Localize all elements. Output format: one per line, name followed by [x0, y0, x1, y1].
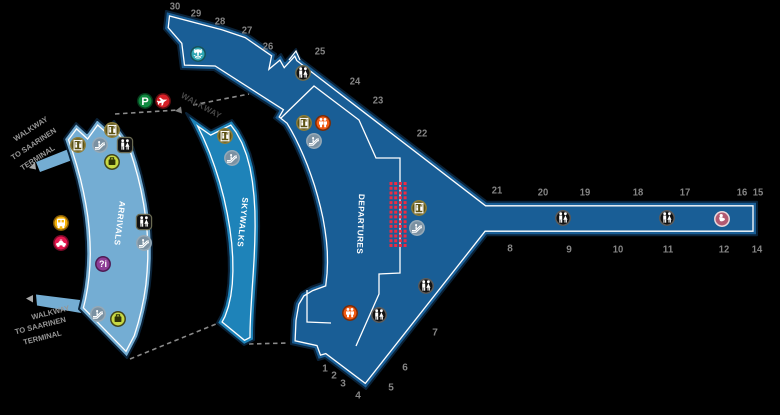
- svg-text:4: 4: [355, 391, 361, 402]
- svg-text:10: 10: [613, 245, 624, 256]
- svg-text:5: 5: [388, 383, 394, 394]
- svg-text:16: 16: [737, 188, 748, 199]
- svg-text:8: 8: [507, 244, 513, 255]
- svg-text:19: 19: [580, 188, 591, 199]
- svg-text:20: 20: [538, 188, 549, 199]
- svg-text:24: 24: [350, 77, 361, 88]
- svg-text:1: 1: [322, 364, 328, 375]
- svg-text:29: 29: [191, 9, 202, 20]
- svg-text:17: 17: [680, 188, 691, 199]
- svg-text:14: 14: [752, 245, 763, 256]
- svg-text:27: 27: [242, 26, 253, 37]
- svg-text:?i: ?i: [99, 259, 107, 269]
- svg-text:25: 25: [315, 47, 326, 58]
- svg-text:21: 21: [492, 186, 503, 197]
- svg-text:26: 26: [263, 42, 274, 53]
- svg-text:3: 3: [340, 379, 346, 390]
- svg-text:6: 6: [402, 363, 408, 374]
- svg-text:11: 11: [663, 245, 674, 256]
- svg-text:12: 12: [719, 245, 730, 256]
- svg-text:18: 18: [633, 188, 644, 199]
- svg-text:30: 30: [170, 2, 181, 13]
- svg-text:2: 2: [331, 371, 337, 382]
- svg-text:P: P: [141, 96, 148, 108]
- svg-text:15: 15: [753, 188, 764, 199]
- svg-text:9: 9: [566, 245, 572, 256]
- svg-text:28: 28: [215, 17, 226, 28]
- svg-text:22: 22: [417, 129, 428, 140]
- svg-text:23: 23: [373, 96, 384, 107]
- svg-text:7: 7: [432, 328, 438, 339]
